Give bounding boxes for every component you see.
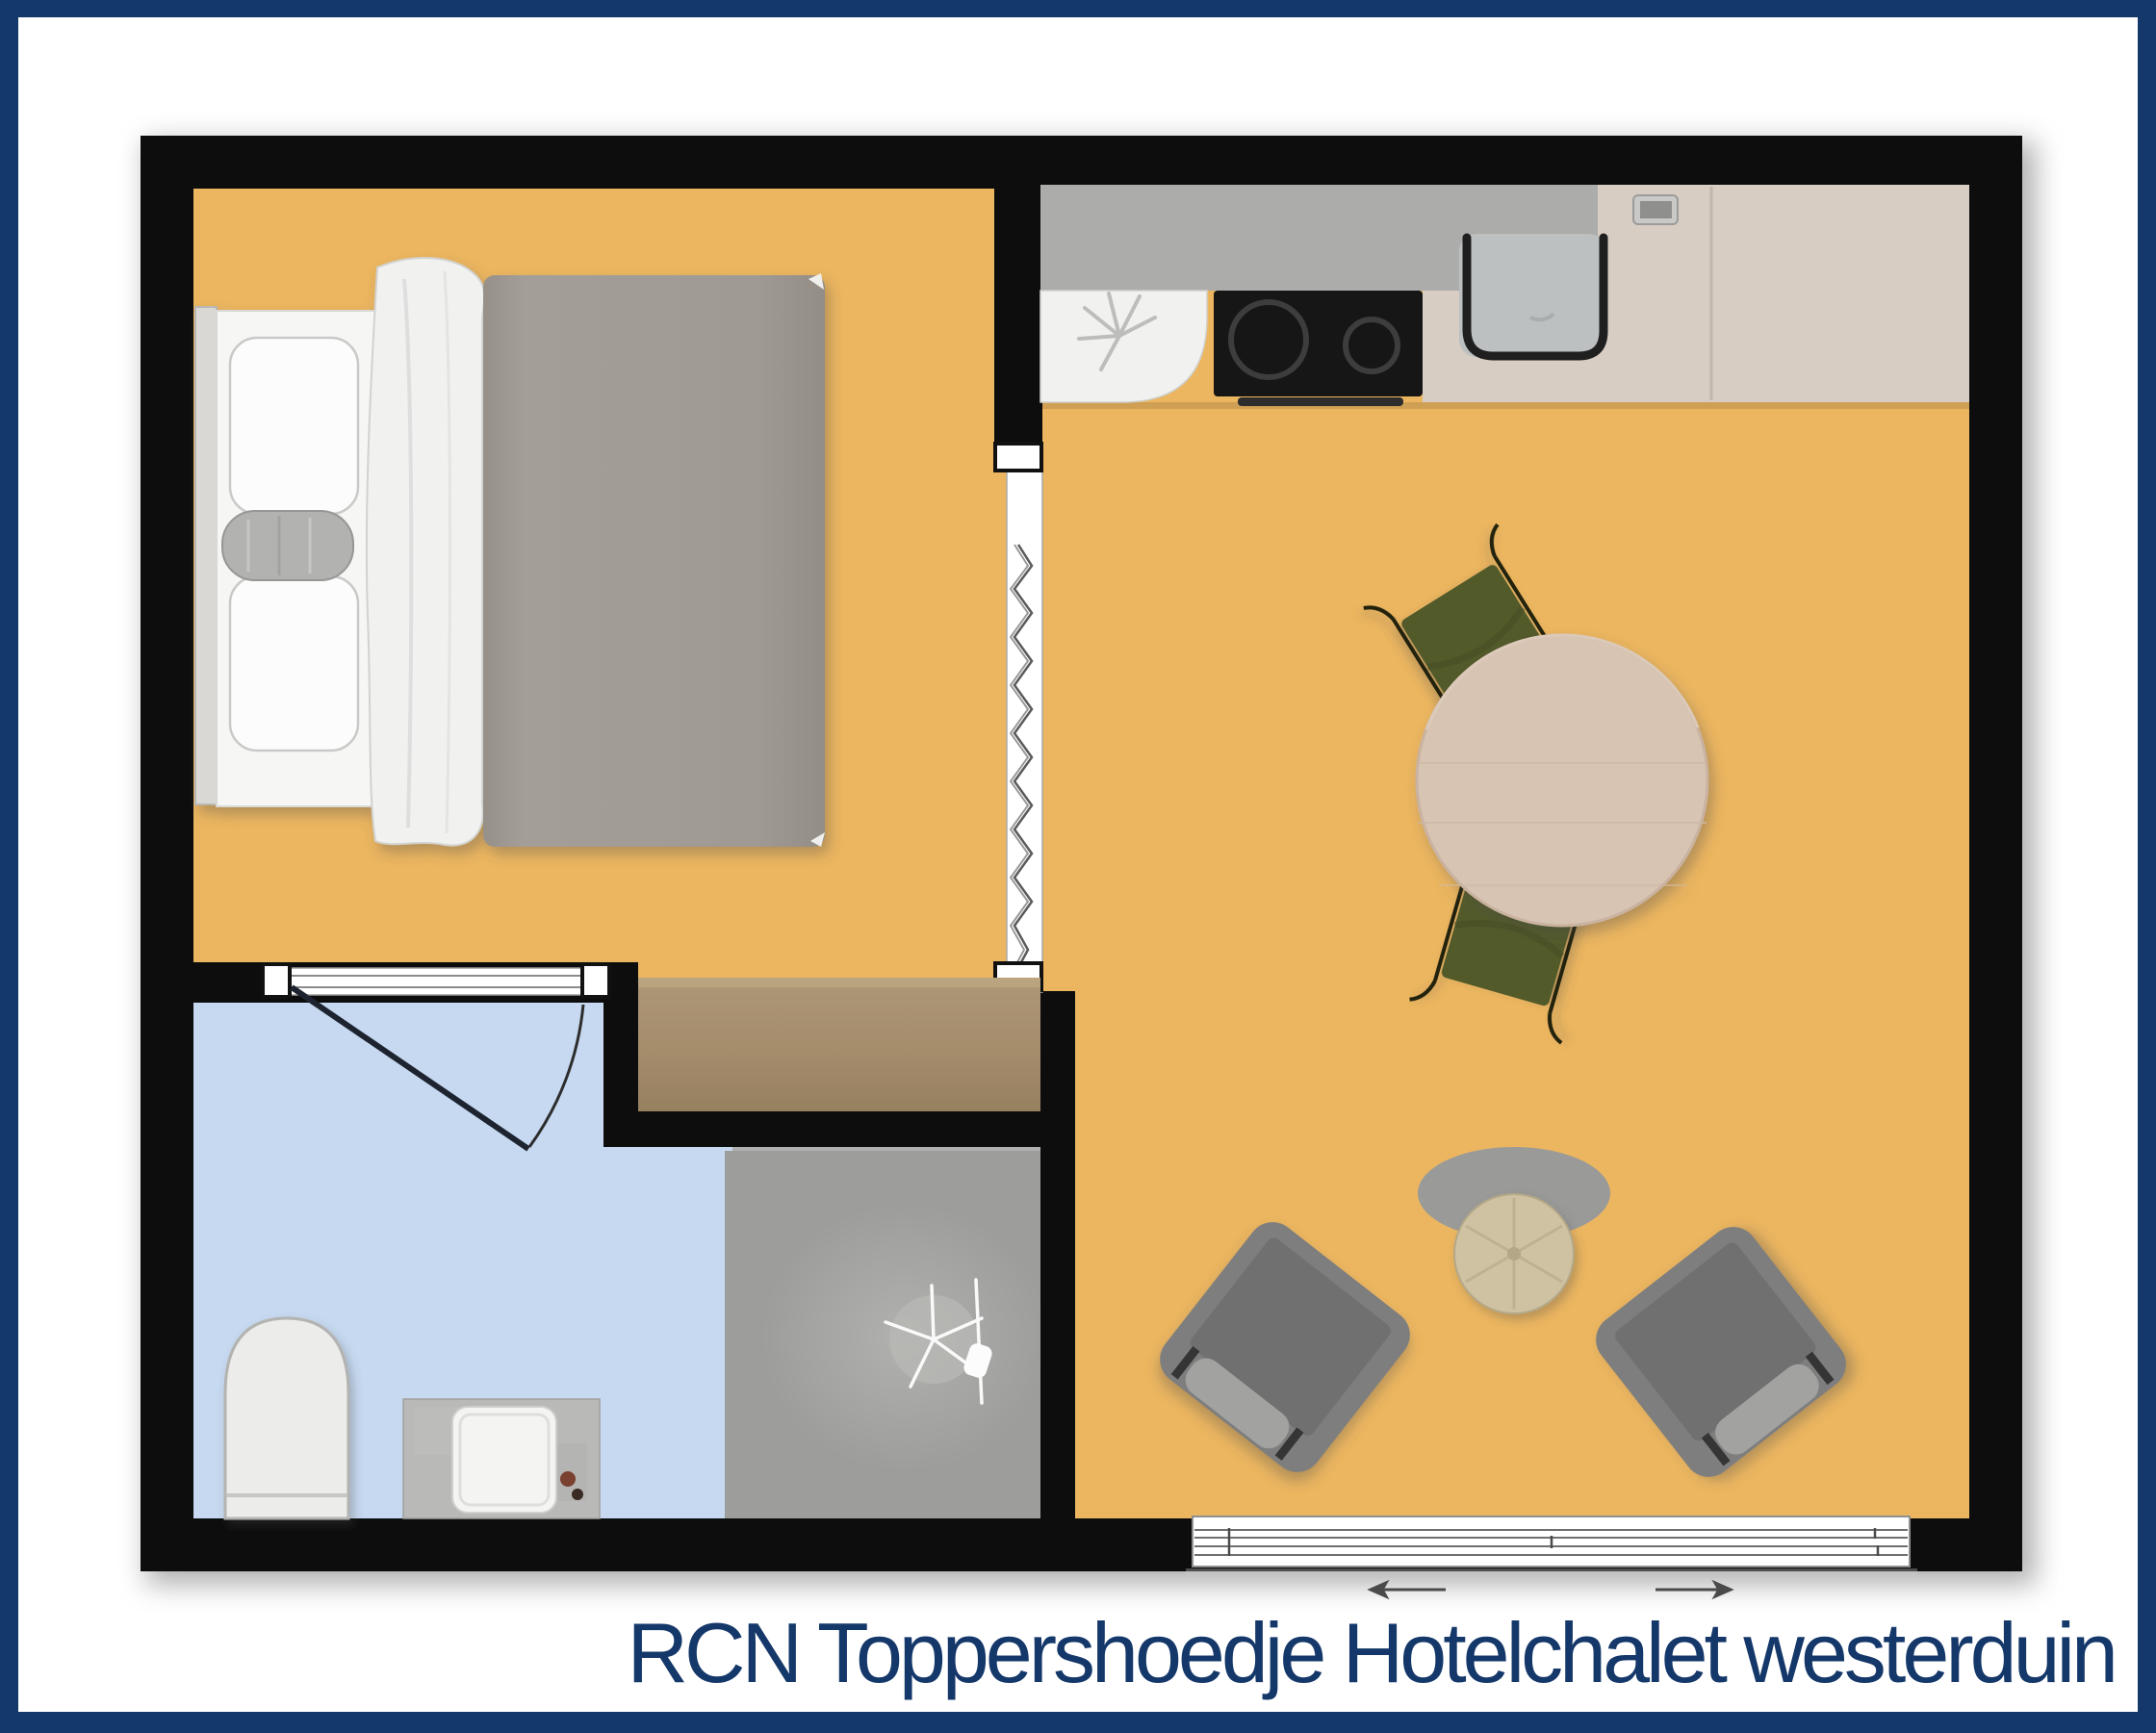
svg-text:RCN Toppershoedje Hotelchalet: RCN Toppershoedje Hotelchalet westerduin	[627, 1605, 2115, 1700]
